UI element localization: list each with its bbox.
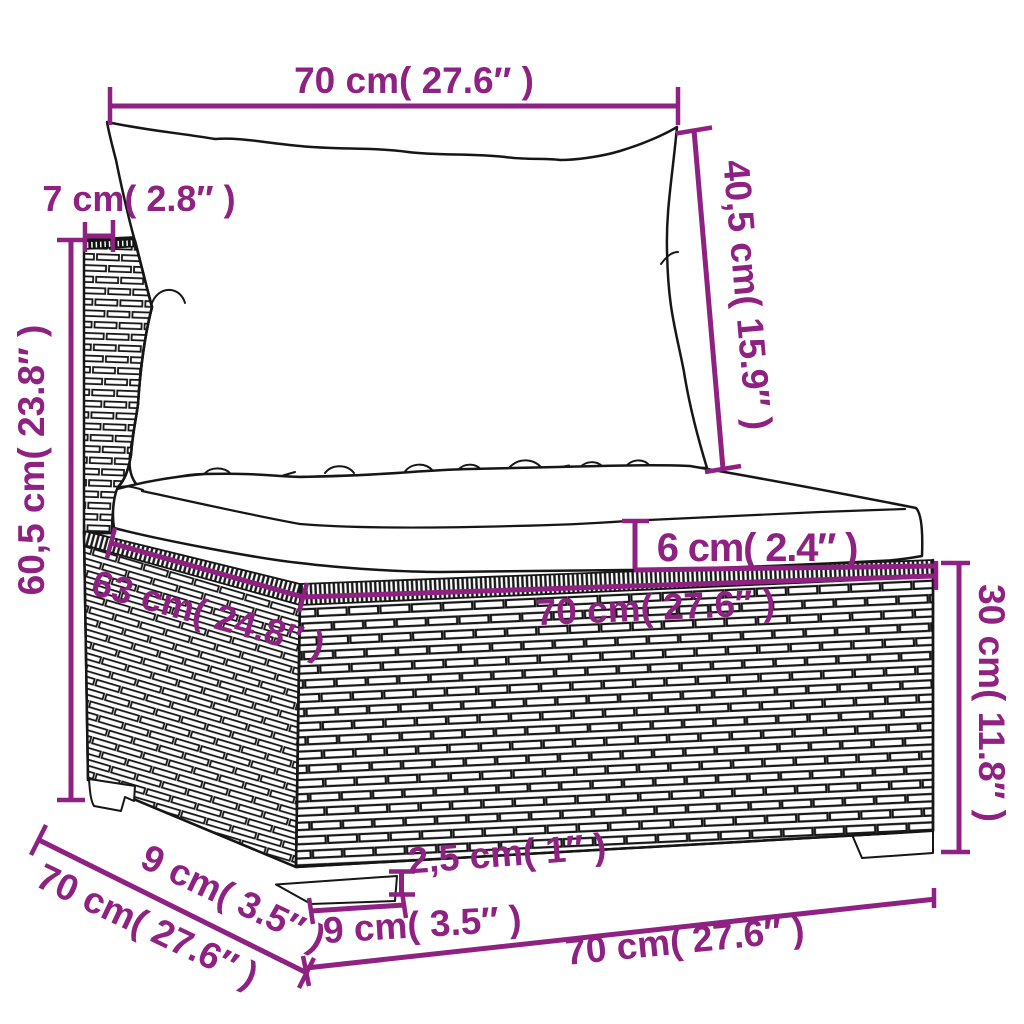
svg-text:60,5 cm( 23.8″ ): 60,5 cm( 23.8″ )	[11, 325, 52, 596]
svg-text:6 cm( 2.4″ ): 6 cm( 2.4″ )	[657, 526, 857, 570]
svg-text:30 cm( 11.8″ ): 30 cm( 11.8″ )	[971, 584, 1012, 822]
svg-text:7 cm( 2.8″ ): 7 cm( 2.8″ )	[42, 178, 235, 219]
svg-text:70 cm( 27.6″ ): 70 cm( 27.6″ )	[294, 60, 534, 101]
